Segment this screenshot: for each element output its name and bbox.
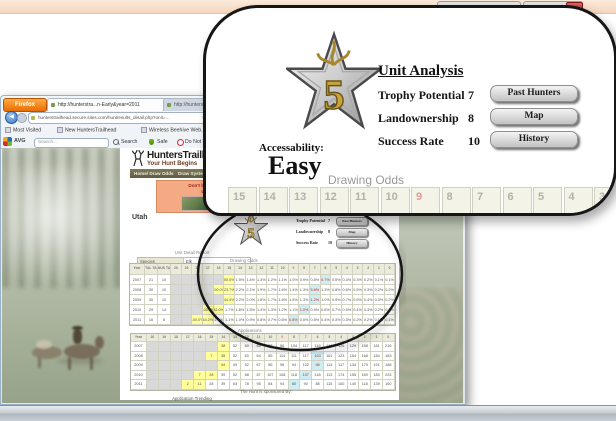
data-cell: 1.1% xyxy=(224,315,235,325)
data-cell xyxy=(147,371,159,381)
do-not-track-icon xyxy=(177,139,184,146)
drawing-odds-header-cell: 11 xyxy=(350,187,379,216)
drawing-odds-header-cell: 9 xyxy=(411,187,440,216)
background-fog xyxy=(2,168,132,288)
past-hunters-button[interactable]: Past Hunters xyxy=(336,217,368,226)
data-cell: 0.2% xyxy=(385,305,396,315)
data-cell: 0.9% xyxy=(299,275,310,285)
data-cell: 1.3% xyxy=(299,295,310,305)
col-header: 12 xyxy=(241,334,253,342)
data-cell: 158 xyxy=(359,342,371,352)
data-cell: 0.2% xyxy=(385,285,396,295)
table-row: 20083010100.0%23.7%2.2%2.1%1.9%1.7%1.6%1… xyxy=(130,285,395,295)
data-cell xyxy=(182,342,194,352)
data-cell: 38 xyxy=(218,342,230,352)
data-cell: 78 xyxy=(265,342,277,352)
data-cell: 28 xyxy=(206,371,218,381)
data-cell: 160 xyxy=(383,380,395,390)
bonus-tags-cell: 10 xyxy=(158,275,171,285)
data-cell: 117 xyxy=(336,361,348,371)
star-value: 5 xyxy=(323,72,344,119)
year-cell: 2011 xyxy=(131,380,147,390)
bonus-tags-cell: 10 xyxy=(158,295,171,305)
data-cell xyxy=(147,352,159,362)
data-cell: 114 xyxy=(277,352,289,362)
data-cell: 1.6% xyxy=(235,305,246,315)
data-cell: 94 xyxy=(289,361,301,371)
data-cell: 139 xyxy=(371,380,383,390)
total-tags-cell: 30 xyxy=(145,295,158,305)
data-cell: 60 xyxy=(241,352,253,362)
data-cell: 1.0% xyxy=(235,315,246,325)
data-cell: 0.8% xyxy=(321,305,332,315)
data-cell: 0.3% xyxy=(363,285,374,295)
data-cell: 140 xyxy=(348,380,360,390)
table-row: 2007385260667890104117116144126129158181… xyxy=(131,342,395,352)
total-tags-cell: 21 xyxy=(145,275,158,285)
data-cell: 184 xyxy=(371,352,383,362)
horse-leg xyxy=(90,357,93,370)
col-header: 14 xyxy=(235,264,246,275)
col-header: 11 xyxy=(253,334,265,342)
data-cell: 90 xyxy=(277,342,289,352)
data-cell xyxy=(147,342,159,352)
metric-value: 10 xyxy=(468,134,480,149)
metric-label: Success Rate xyxy=(296,240,318,245)
data-cell: 1.4% xyxy=(257,305,268,315)
data-cell: 1.7% xyxy=(214,315,225,325)
data-cell xyxy=(214,275,225,285)
data-cell: 118 xyxy=(312,371,324,381)
forward-button[interactable] xyxy=(17,113,27,123)
magnified-callout: 5 Accessability: Easy Unit Analysis Trop… xyxy=(203,5,616,216)
data-cell xyxy=(171,342,183,352)
total-tags-cell: 16 xyxy=(145,315,158,325)
data-cell: 126 xyxy=(336,342,348,352)
data-cell xyxy=(206,361,218,371)
data-cell: 0.2% xyxy=(363,315,374,325)
data-cell: 107 xyxy=(265,371,277,381)
data-cell xyxy=(159,371,171,381)
data-cell: 2.1% xyxy=(246,285,257,295)
data-cell: 169 xyxy=(359,371,371,381)
data-cell: 52 xyxy=(230,371,242,381)
data-cell: 0.2% xyxy=(363,275,374,285)
table-row: 2007211050.0%1.5%1.4%1.3%1.2%1.1%1.0%0.9… xyxy=(130,275,395,285)
data-cell: 216 xyxy=(383,342,395,352)
data-cell: 1.7% xyxy=(267,285,278,295)
drawing-odds-header-cell: 15 xyxy=(228,187,257,216)
drawing-odds-header-cell: 10 xyxy=(381,187,410,216)
col-header: Year xyxy=(131,334,147,342)
data-cell: 0.4% xyxy=(321,315,332,325)
data-cell: 2 xyxy=(182,380,194,390)
data-cell xyxy=(171,361,183,371)
unit-analysis-title: Unit Analysis xyxy=(378,63,463,80)
data-cell: 0.2% xyxy=(374,285,385,295)
col-header: 6 xyxy=(312,334,324,342)
data-cell xyxy=(203,295,214,305)
data-cell: 1.0% xyxy=(289,275,300,285)
table-row: 2008738526064851141111171631611231541681… xyxy=(131,352,395,362)
data-cell: 0.7% xyxy=(331,305,342,315)
data-cell xyxy=(192,275,203,285)
horse-leg xyxy=(38,357,41,368)
data-cell: 0.5% xyxy=(310,315,321,325)
horse-head xyxy=(95,336,104,349)
year-cell: 2009 xyxy=(131,361,147,371)
firefox-menu-button[interactable]: Firefox xyxy=(3,98,47,112)
data-cell: 0.8% xyxy=(257,315,268,325)
data-cell: 0.1% xyxy=(374,315,385,325)
data-cell: 0.5% xyxy=(353,285,364,295)
col-header: 15 xyxy=(224,264,235,275)
data-cell: 154 xyxy=(348,352,360,362)
data-cell: 2.2% xyxy=(235,295,246,305)
data-cell xyxy=(192,305,203,315)
data-cell: 191 xyxy=(371,361,383,371)
data-cell: 1.8% xyxy=(257,295,268,305)
data-cell: 161 xyxy=(324,352,336,362)
table-header-row: Year20191817161514131211109876543210 xyxy=(131,334,395,342)
col-header: 7 xyxy=(310,264,321,275)
data-cell xyxy=(194,361,206,371)
map-button[interactable]: Map xyxy=(336,228,368,237)
data-cell xyxy=(159,361,171,371)
history-button[interactable]: History xyxy=(490,131,578,148)
data-cell: 168 xyxy=(359,352,371,362)
col-header: 1 xyxy=(371,334,383,342)
data-cell: 0.7% xyxy=(321,275,332,285)
col-header: 4 xyxy=(336,334,348,342)
data-cell: 174 xyxy=(336,371,348,381)
data-cell: 0.2% xyxy=(353,315,364,325)
data-cell: 188 xyxy=(383,361,395,371)
data-cell: 1.3% xyxy=(257,275,268,285)
year-cell: 2008 xyxy=(131,352,147,362)
rider-hat xyxy=(72,326,83,330)
col-header: 8 xyxy=(289,334,301,342)
col-header: 5 xyxy=(331,264,342,275)
data-cell: 0.3% xyxy=(331,315,342,325)
unit-detail-title: Unit Detail Report xyxy=(137,250,247,255)
data-cell xyxy=(171,275,182,285)
data-cell: 52.0% xyxy=(214,305,225,315)
drawing-odds-header-cell: 3 xyxy=(594,187,616,216)
applications-table: Year201918171615141312111098765432102007… xyxy=(130,333,396,391)
drawing-odds-header-cell: 13 xyxy=(289,187,318,216)
col-header: 13 xyxy=(246,264,257,275)
col-header: 3 xyxy=(353,264,364,275)
application-trending-text: Application Trending xyxy=(172,396,212,401)
data-cell: 104 xyxy=(289,342,301,352)
data-cell: 0.5% xyxy=(299,315,310,325)
total-tags-cell: 29 xyxy=(145,305,158,315)
avg-search-action[interactable]: Search xyxy=(121,139,137,145)
data-cell: 155 xyxy=(348,371,360,381)
col-header: 10 xyxy=(265,334,277,342)
data-cell: 28 xyxy=(206,380,218,390)
data-cell: 100.0% xyxy=(192,315,203,325)
col-header: 0 xyxy=(385,264,396,275)
history-button[interactable]: History xyxy=(336,239,368,248)
data-cell: 0.9% xyxy=(331,295,342,305)
data-cell: 1.3% xyxy=(299,285,310,295)
data-cell: 0.6% xyxy=(342,285,353,295)
col-header: 19 xyxy=(159,334,171,342)
drawing-odds-header-cell: 14 xyxy=(259,187,288,216)
site-favicon xyxy=(31,116,35,120)
windows-taskbar xyxy=(0,405,616,421)
data-cell: 1.5% xyxy=(246,305,257,315)
col-header: 1 xyxy=(374,264,385,275)
data-cell xyxy=(194,342,206,352)
data-cell: 0.8% xyxy=(289,315,300,325)
data-cell xyxy=(182,305,193,315)
data-cell: 2.2% xyxy=(235,285,246,295)
table-row: 2010728395268871071081181071181131741551… xyxy=(131,371,395,381)
metric-label: Landownership xyxy=(378,111,459,126)
state-heading: Utah xyxy=(132,214,148,221)
data-cell xyxy=(182,352,194,362)
data-cell: 54.2% xyxy=(203,315,214,325)
past-hunters-button[interactable]: Past Hunters xyxy=(490,85,578,102)
data-cell: 1.9% xyxy=(257,285,268,295)
data-cell: 86 xyxy=(265,361,277,371)
data-cell: 52 xyxy=(230,342,242,352)
col-header: TOTAL TAGS xyxy=(145,264,158,275)
col-header: 13 xyxy=(230,334,242,342)
data-cell: 0.4% xyxy=(363,295,374,305)
data-cell xyxy=(147,361,159,371)
data-cell: 181 xyxy=(371,342,383,352)
data-cell: 0.9% xyxy=(310,305,321,315)
data-cell: 144 xyxy=(324,342,336,352)
data-cell xyxy=(182,295,193,305)
data-cell: 113 xyxy=(324,371,336,381)
data-cell: 1.6% xyxy=(278,295,289,305)
data-cell: 1.2% xyxy=(278,305,289,315)
data-cell xyxy=(182,361,194,371)
data-cell: 44.4% xyxy=(224,295,235,305)
data-cell: 0.7% xyxy=(267,315,278,325)
data-cell: 0.3% xyxy=(353,275,364,285)
data-cell: 1.4% xyxy=(246,275,257,285)
metric-value: 10 xyxy=(328,240,332,245)
nav-item-draw-odds[interactable]: Home/ Draw Odds xyxy=(134,171,174,176)
data-cell: 117 xyxy=(300,342,312,352)
data-cell xyxy=(194,352,206,362)
rating-star-icon: 5 xyxy=(234,210,268,250)
data-cell xyxy=(192,295,203,305)
data-cell: 102 xyxy=(300,361,312,371)
data-cell xyxy=(182,275,193,285)
data-cell: 1.2% xyxy=(310,295,321,305)
avg-search-input[interactable]: Search... xyxy=(34,138,109,148)
data-cell: 88 xyxy=(312,380,324,390)
data-cell: 111 xyxy=(289,352,301,362)
sponsored-text: The Hunt is sponsored By: xyxy=(240,389,292,394)
data-cell xyxy=(171,352,183,362)
shield-icon xyxy=(149,139,154,145)
data-cell: 118 xyxy=(359,380,371,390)
avg-safe-action[interactable]: Safe xyxy=(157,139,168,145)
data-cell xyxy=(182,315,193,325)
data-cell xyxy=(182,371,194,381)
table-row: 2009301044.4%2.2%2.0%1.8%1.7%1.6%1.5%1.3… xyxy=(130,295,395,305)
data-cell: 39 xyxy=(218,371,230,381)
data-cell: 1.1% xyxy=(278,275,289,285)
horse-pack xyxy=(36,340,52,349)
rating-star-icon: 5 xyxy=(286,30,382,144)
col-header: 0 xyxy=(383,334,395,342)
data-cell xyxy=(159,342,171,352)
data-cell: 98 xyxy=(312,361,324,371)
data-cell: 0.3% xyxy=(363,305,374,315)
col-header: 20 xyxy=(147,334,159,342)
site-tagline: Your Hunt Begins xyxy=(147,161,197,167)
data-cell: 52 xyxy=(230,352,242,362)
data-cell: 0.2% xyxy=(385,295,396,305)
data-cell: 183 xyxy=(371,371,383,381)
col-header: Year xyxy=(130,264,145,275)
table-row: 20102914100.0%52.0%1.7%1.6%1.5%1.4%1.3%1… xyxy=(130,305,395,315)
data-cell: 0.1% xyxy=(385,275,396,285)
bookmark-item[interactable]: Most Visited xyxy=(5,127,41,133)
data-cell: 183 xyxy=(383,352,395,362)
data-cell: 100 xyxy=(336,380,348,390)
drawing-odds-header-cell: 8 xyxy=(442,187,471,216)
year-cell: 2007 xyxy=(130,275,145,285)
col-header: 18 xyxy=(171,334,183,342)
data-cell: 68 xyxy=(241,371,253,381)
data-cell: 1.1% xyxy=(289,305,300,315)
data-cell: 11 xyxy=(194,380,206,390)
data-cell: 0.1% xyxy=(385,315,396,325)
table-row: 2011168100.0%54.2%1.7%1.1%1.0%0.9%0.8%0.… xyxy=(130,315,395,325)
data-cell: 2.0% xyxy=(246,295,257,305)
data-cell: 85 xyxy=(265,352,277,362)
browser-tab-active[interactable]: http://hunterstra...n-Early&year=2011 x xyxy=(47,98,174,111)
data-cell: 100.0% xyxy=(214,285,225,295)
col-header: 5 xyxy=(324,334,336,342)
drawing-odds-table: YearTOTAL TAGSBONUS TAGS2019181716151413… xyxy=(129,263,396,326)
data-cell: 116 xyxy=(312,342,324,352)
data-cell: 52 xyxy=(241,361,253,371)
col-header: 16 xyxy=(214,264,225,275)
data-cell xyxy=(182,285,193,295)
url-bar[interactable]: hunterstrailhead.secure.sites.com/huntre… xyxy=(28,112,209,124)
data-cell: 1.0% xyxy=(299,305,310,315)
col-header: 15 xyxy=(206,334,218,342)
bonus-tags-cell: 8 xyxy=(158,315,171,325)
col-header: 18 xyxy=(192,264,203,275)
col-header: 6 xyxy=(321,264,332,275)
data-cell: 1.0% xyxy=(321,295,332,305)
year-cell: 2007 xyxy=(131,342,147,352)
data-cell: 1.3% xyxy=(321,285,332,295)
data-cell: 0.5% xyxy=(353,295,364,305)
data-cell: 67 xyxy=(253,361,265,371)
star-value: 5 xyxy=(247,226,254,242)
bonus-tags-cell: 14 xyxy=(158,305,171,315)
map-button[interactable]: Map xyxy=(490,108,578,125)
bookmark-item[interactable]: Wireless Beehive Web... xyxy=(141,127,205,133)
accessibility-value: Easy xyxy=(268,151,321,181)
data-cell: 114 xyxy=(324,361,336,371)
data-cell: 0.6% xyxy=(278,315,289,325)
data-cell: 118 xyxy=(289,371,301,381)
tab-favicon xyxy=(51,103,55,107)
data-cell xyxy=(203,285,214,295)
data-cell xyxy=(171,295,182,305)
col-header: 11 xyxy=(267,264,278,275)
data-cell: 123 xyxy=(336,352,348,362)
data-cell: 66 xyxy=(253,342,265,352)
data-cell: 94 xyxy=(218,361,230,371)
search-icon xyxy=(113,139,119,145)
col-header: 7 xyxy=(300,334,312,342)
metric-label: Success Rate xyxy=(378,134,444,149)
year-cell: 2010 xyxy=(130,305,145,315)
data-cell: 1.2% xyxy=(267,275,278,285)
col-header: 14 xyxy=(218,334,230,342)
col-header: 3 xyxy=(348,334,360,342)
bookmark-item[interactable]: New HuntersTrailhead xyxy=(57,127,116,133)
deer-logo-icon xyxy=(130,150,146,167)
data-cell: 0.3% xyxy=(374,295,385,305)
data-cell: 39 xyxy=(218,380,230,390)
data-cell: 117 xyxy=(300,352,312,362)
horse-leg xyxy=(68,357,71,370)
col-header: 19 xyxy=(182,264,193,275)
data-cell: 90 xyxy=(300,380,312,390)
data-cell: 38 xyxy=(218,352,230,362)
data-cell: 0.4% xyxy=(342,275,353,285)
data-cell: 5.8% xyxy=(310,285,321,295)
data-cell xyxy=(171,285,182,295)
data-cell: 1.5% xyxy=(289,295,300,305)
avg-brand-label[interactable]: AVG xyxy=(14,138,26,144)
year-cell: 2010 xyxy=(131,371,147,381)
drawing-odds-header-cell: 7 xyxy=(472,187,501,216)
data-cell xyxy=(171,315,182,325)
rider xyxy=(73,329,82,344)
data-cell xyxy=(147,380,159,390)
metric-value: 7 xyxy=(468,88,474,103)
col-header: 2 xyxy=(363,264,374,275)
drawing-odds-title: Drawing Odds xyxy=(328,173,404,187)
data-cell xyxy=(159,352,171,362)
data-cell xyxy=(159,380,171,390)
data-cell: 0.4% xyxy=(353,305,364,315)
data-cell xyxy=(171,371,183,381)
col-header: 9 xyxy=(277,334,289,342)
data-cell xyxy=(171,380,183,390)
data-cell: 7 xyxy=(206,352,218,362)
data-cell xyxy=(203,275,214,285)
total-tags-cell: 30 xyxy=(145,285,158,295)
table-row: 2009944952678696941029811411713417519118… xyxy=(131,361,395,371)
data-cell: 0.2% xyxy=(374,305,385,315)
data-cell: 64 xyxy=(253,352,265,362)
data-cell: 0.9% xyxy=(246,315,257,325)
data-cell: 1.7% xyxy=(267,295,278,305)
year-cell: 2008 xyxy=(130,285,145,295)
data-cell: 1.6% xyxy=(278,285,289,295)
metric-label: Landownership xyxy=(296,229,323,234)
metric-label: Trophy Potential xyxy=(296,218,325,223)
